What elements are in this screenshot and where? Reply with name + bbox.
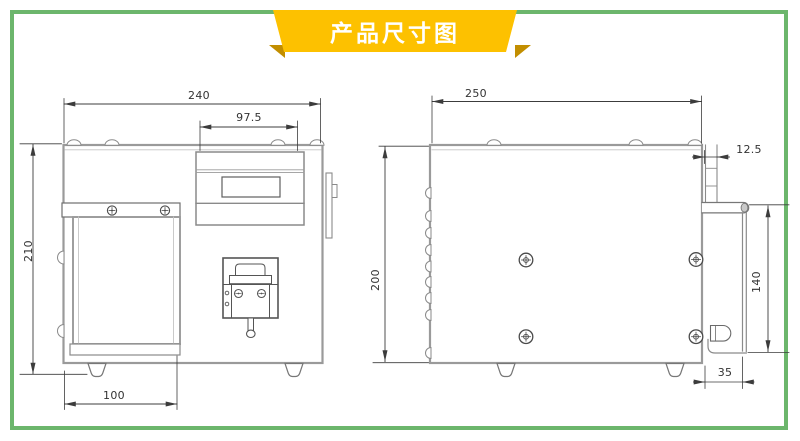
screw-icon xyxy=(235,290,243,298)
dim-label-total-width: 240 xyxy=(184,90,214,102)
screw-icon xyxy=(160,206,169,215)
dimension-drawing xyxy=(0,0,800,441)
pump-tube-tip xyxy=(247,330,256,337)
screw-icon xyxy=(689,253,703,267)
dimension-250 xyxy=(432,96,702,143)
front-view xyxy=(20,99,337,410)
screw-icon xyxy=(519,253,533,267)
side-handle-bracket xyxy=(706,145,718,203)
dim-label-total-height: 210 xyxy=(23,236,35,266)
hose-barb xyxy=(711,326,731,342)
screw-icon xyxy=(689,330,703,344)
dimension-200 xyxy=(373,146,429,363)
dim-label-body-height: 200 xyxy=(370,265,382,295)
screw-icon xyxy=(519,330,533,344)
dim-label-total-depth: 250 xyxy=(461,88,491,100)
dim-label-door-width: 100 xyxy=(99,390,129,402)
front-side-bracket xyxy=(326,173,337,238)
dim-label-handle-offset: 12.5 xyxy=(734,144,764,156)
side-case xyxy=(426,140,703,363)
side-feet xyxy=(497,364,684,377)
screw-icon xyxy=(258,290,266,298)
arm-end-knob xyxy=(741,203,748,212)
display-panel xyxy=(196,152,304,225)
side-view xyxy=(373,96,789,389)
page-title: 产品尺寸图 xyxy=(330,14,460,48)
dim-label-bracket-depth: 35 xyxy=(710,367,740,379)
dimension-240 xyxy=(64,99,321,143)
title-banner: 产品尺寸图 xyxy=(273,10,517,52)
front-feet xyxy=(88,364,303,377)
screw-icon xyxy=(107,206,116,215)
pump-tube xyxy=(248,318,254,331)
dim-label-bracket-height: 140 xyxy=(751,267,763,297)
side-bracket-arm xyxy=(702,203,749,213)
dim-label-panel-width: 97.5 xyxy=(234,112,264,124)
